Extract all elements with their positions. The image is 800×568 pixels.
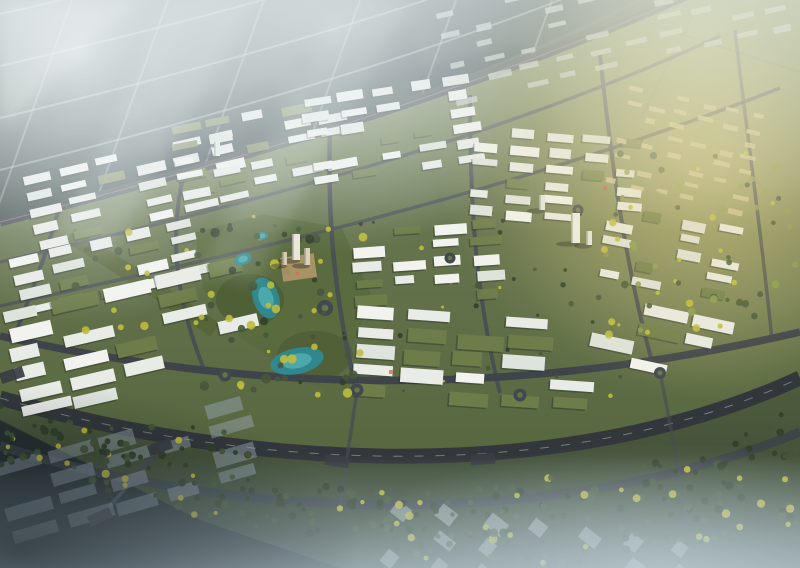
tree — [312, 308, 317, 313]
tree — [317, 288, 325, 296]
tree — [287, 354, 296, 363]
tree — [266, 303, 271, 308]
tree — [441, 306, 444, 309]
tree — [205, 318, 209, 322]
tree — [312, 277, 317, 282]
tree — [349, 370, 358, 379]
building — [434, 273, 459, 284]
building — [400, 367, 444, 385]
aerial-render: Aerial masterplan rendering of a new tow… — [0, 0, 800, 568]
tree — [228, 337, 234, 343]
tree — [318, 259, 323, 264]
tree — [345, 353, 350, 358]
tree — [263, 333, 268, 338]
tree — [555, 375, 559, 379]
tree — [272, 305, 281, 314]
building — [352, 261, 382, 273]
roundabout-island — [448, 256, 453, 261]
tree — [280, 355, 288, 363]
tree — [82, 326, 90, 334]
tree — [419, 246, 424, 251]
tree — [356, 349, 363, 356]
tree — [208, 302, 215, 309]
building — [452, 350, 482, 366]
tree — [343, 336, 347, 340]
building — [395, 275, 414, 284]
tree — [342, 332, 345, 335]
tree — [140, 322, 148, 330]
tower-shade-edge — [282, 252, 284, 265]
building — [408, 328, 447, 344]
tree — [275, 376, 281, 382]
tree — [315, 392, 321, 398]
tree — [267, 281, 274, 288]
tree — [261, 374, 271, 384]
tree — [486, 366, 491, 371]
tree — [267, 350, 271, 354]
tree — [278, 362, 284, 368]
building — [403, 349, 440, 366]
building — [456, 372, 485, 384]
tree — [282, 375, 288, 381]
roundabout-island — [517, 392, 522, 397]
tree — [298, 314, 303, 319]
building — [502, 354, 545, 371]
red-roof — [389, 370, 393, 374]
tree — [793, 447, 799, 453]
tree — [343, 388, 352, 397]
tree — [398, 333, 403, 338]
tree — [732, 441, 738, 447]
tree — [474, 303, 479, 308]
tree — [193, 320, 198, 325]
tree — [118, 324, 124, 330]
tree — [768, 425, 773, 430]
tree — [247, 321, 256, 330]
tree — [321, 311, 327, 317]
roundabout-island — [222, 372, 227, 377]
tree — [298, 380, 302, 384]
tree — [260, 317, 268, 325]
tree — [251, 387, 257, 393]
tree — [237, 381, 245, 389]
tree — [608, 394, 613, 399]
roundabout-island — [322, 305, 329, 312]
tree — [744, 432, 748, 436]
tree — [776, 429, 784, 437]
tree — [310, 334, 315, 339]
tree — [402, 389, 405, 392]
tree — [311, 344, 318, 351]
tree — [327, 292, 332, 297]
tree — [199, 314, 205, 320]
building — [449, 392, 489, 408]
tree — [200, 381, 209, 390]
roundabout-island — [354, 387, 359, 392]
tree — [238, 325, 245, 332]
building — [357, 305, 394, 320]
tree — [225, 315, 233, 323]
red-roof — [296, 272, 299, 275]
tree — [340, 379, 346, 385]
tree — [779, 412, 784, 417]
building — [355, 294, 388, 307]
masterplan-svg: Aerial masterplan rendering of a new tow… — [0, 0, 800, 568]
